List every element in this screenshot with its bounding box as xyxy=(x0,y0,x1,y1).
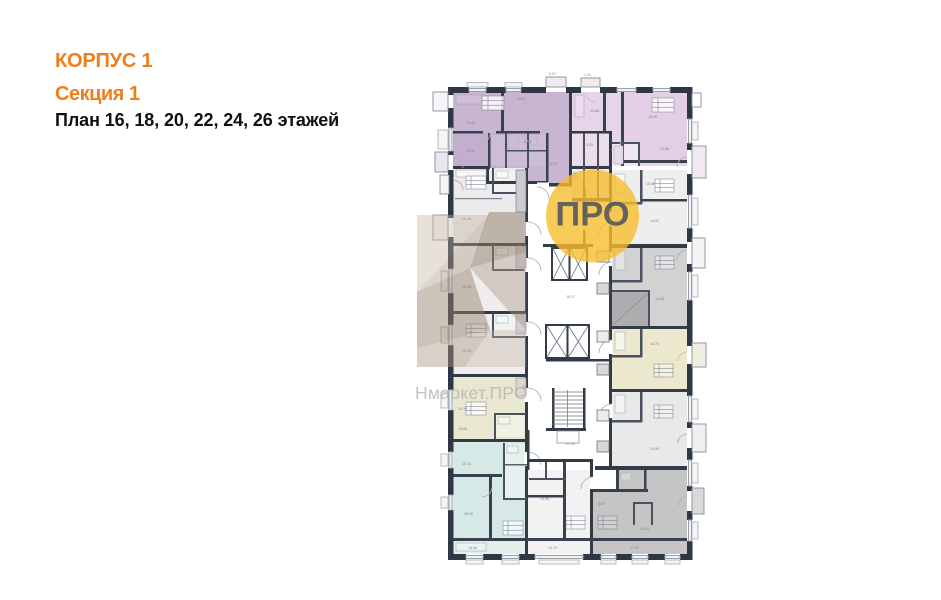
svg-text:14.59: 14.59 xyxy=(650,447,659,451)
svg-text:16.56: 16.56 xyxy=(468,546,477,550)
svg-text:0.97: 0.97 xyxy=(549,72,556,76)
svg-text:ПРО: ПРО xyxy=(555,196,629,234)
svg-text:13.70: 13.70 xyxy=(548,546,557,550)
svg-text:16.17: 16.17 xyxy=(566,295,575,299)
svg-text:15.06: 15.06 xyxy=(648,115,657,119)
svg-text:15.68: 15.68 xyxy=(458,427,467,431)
svg-text:12.02: 12.02 xyxy=(466,149,475,153)
svg-text:15.41: 15.41 xyxy=(466,121,475,125)
svg-text:13.41: 13.41 xyxy=(517,97,526,101)
svg-text:3.05: 3.05 xyxy=(586,143,593,147)
svg-text:13.68: 13.68 xyxy=(590,109,599,113)
svg-text:10.66: 10.66 xyxy=(646,182,655,186)
svg-text:10.66: 10.66 xyxy=(660,147,669,151)
svg-text:14.36: 14.36 xyxy=(655,297,664,301)
svg-text:1.31: 1.31 xyxy=(584,73,591,77)
svg-text:3.98: 3.98 xyxy=(524,140,531,144)
svg-text:14.52: 14.52 xyxy=(650,219,659,223)
svg-text:Нмаркет.ПРО: Нмаркет.ПРО xyxy=(415,383,528,403)
svg-text:14.30: 14.30 xyxy=(640,527,649,531)
svg-text:14.96: 14.96 xyxy=(540,497,549,501)
svg-text:13.04: 13.04 xyxy=(566,442,575,446)
svg-text:16.14: 16.14 xyxy=(462,462,471,466)
svg-text:16.98: 16.98 xyxy=(464,512,473,516)
svg-text:16.74: 16.74 xyxy=(650,342,659,346)
svg-text:5.07: 5.07 xyxy=(550,162,557,166)
svg-text:17.07: 17.07 xyxy=(630,546,639,550)
svg-text:4.87: 4.87 xyxy=(598,502,605,506)
svg-text:10.36: 10.36 xyxy=(458,407,467,411)
